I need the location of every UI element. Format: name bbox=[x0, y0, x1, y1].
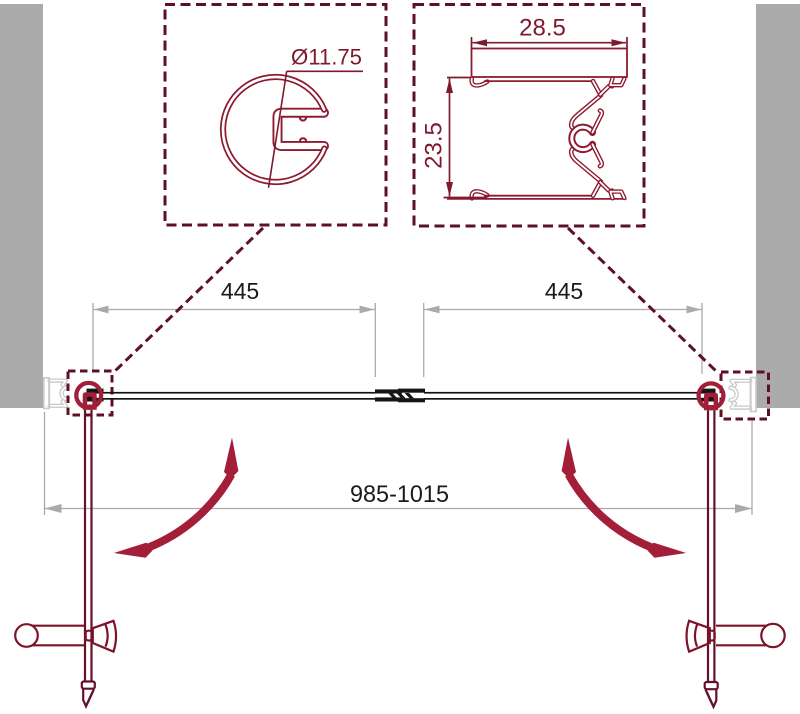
svg-text:23.5: 23.5 bbox=[421, 122, 448, 169]
svg-text:445: 445 bbox=[221, 278, 259, 304]
svg-text:445: 445 bbox=[545, 278, 583, 304]
svg-text:Ø11.75: Ø11.75 bbox=[291, 45, 362, 70]
svg-text:985-1015: 985-1015 bbox=[350, 481, 449, 508]
svg-text:28.5: 28.5 bbox=[519, 15, 566, 42]
